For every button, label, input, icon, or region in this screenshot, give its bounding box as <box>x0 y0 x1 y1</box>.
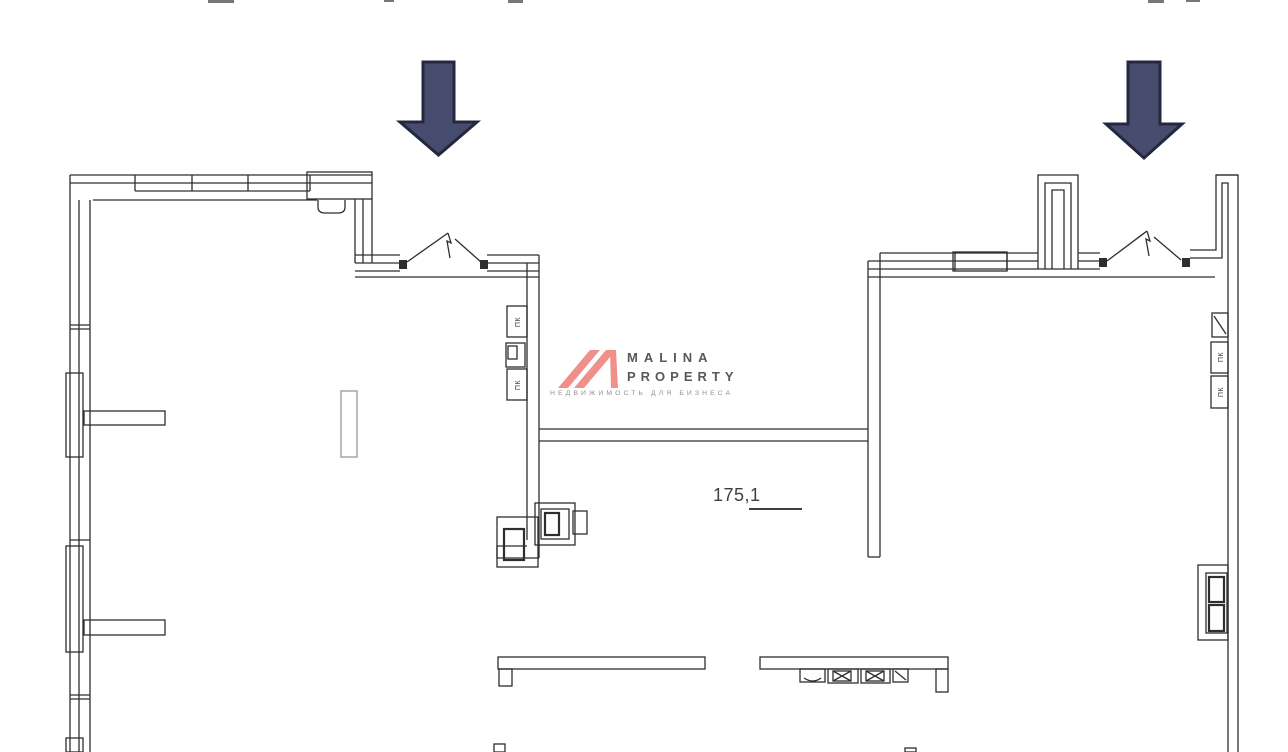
right-wall-fixtures: ПК ПК <box>1198 313 1228 640</box>
door-jamb <box>1182 258 1190 267</box>
cropped-edge-marks <box>208 0 1200 3</box>
door-swing <box>407 233 448 262</box>
interior-stub-wall <box>84 411 165 425</box>
brand-logo: MALINA PROPERTY НЕДВИЖИМОСТЬ ДЛЯ БИЗНЕСА <box>548 338 748 402</box>
counter <box>498 657 705 669</box>
equipment-unit <box>1209 605 1224 631</box>
top-left-wall <box>70 172 372 263</box>
sink-cross <box>833 671 851 681</box>
equipment-unit <box>545 513 559 535</box>
entrance-arrow-icon <box>400 62 477 155</box>
wall-pier <box>66 373 83 457</box>
brand-logo-mark-icon <box>554 344 620 392</box>
sink-detail <box>895 671 906 680</box>
bottom-furniture <box>494 657 948 752</box>
entrance-arrow-icon <box>1106 62 1182 158</box>
equipment-unit <box>504 529 524 560</box>
wall-pier <box>66 738 83 752</box>
sink-unit <box>800 669 825 682</box>
window-mullion <box>955 253 1007 271</box>
door-jamb <box>1099 258 1107 267</box>
cabinet-detail <box>508 346 517 359</box>
fire-cabinet-label: ПК <box>1218 352 1225 363</box>
window-mullion <box>70 325 90 329</box>
left-exterior-wall <box>66 175 165 752</box>
brand-name-line2: PROPERTY <box>627 369 739 384</box>
door-swing <box>1107 231 1147 261</box>
brand-tagline: НЕДВИЖИМОСТЬ ДЛЯ БИЗНЕСА <box>550 390 733 397</box>
table-leg-cropped <box>494 744 505 752</box>
wall-line <box>1078 253 1100 261</box>
floor-plan-page: ПК ПК ПК ПК <box>0 0 1288 752</box>
wall-step <box>355 199 372 263</box>
right-top-wall <box>868 175 1215 277</box>
counter-leg <box>499 669 512 686</box>
sink-cross <box>866 671 884 681</box>
counter <box>760 657 948 669</box>
room-area-label: 175,1 <box>713 485 761 506</box>
door-swing <box>1154 237 1181 260</box>
door-swing-break <box>1146 231 1150 256</box>
entrance-door-1 <box>355 233 539 277</box>
wall-line <box>1190 183 1228 752</box>
pillar-outline <box>1045 183 1071 269</box>
interior-stub-wall <box>84 620 165 635</box>
pillar-outline <box>1052 190 1064 269</box>
fire-cabinet-label: ПК <box>515 380 522 391</box>
pillar-outline <box>1038 175 1078 269</box>
wall-pier <box>66 546 83 652</box>
corridor-wall <box>539 253 880 557</box>
right-exterior-wall <box>1190 175 1238 752</box>
window-mullion <box>70 695 90 699</box>
wall-niche <box>318 200 345 213</box>
door-swing-break <box>447 233 451 258</box>
fire-cabinet-label: ПК <box>515 317 522 328</box>
door-swing <box>455 239 481 262</box>
entrance-door-2 <box>1099 231 1190 267</box>
brand-name-line1: MALINA <box>627 350 714 365</box>
door-jamb <box>399 260 407 269</box>
fire-cabinet-label: ПК <box>1218 387 1225 398</box>
room-area-underline <box>749 508 802 510</box>
column <box>341 391 357 457</box>
equipment-unit <box>1209 577 1224 602</box>
cabinet-detail <box>1214 316 1226 334</box>
table-leg-cropped <box>905 748 916 752</box>
counter-leg <box>936 669 948 692</box>
wall-line <box>1190 175 1238 752</box>
middle-left-wall <box>497 255 539 558</box>
wall-pier <box>307 172 372 199</box>
sink-detail <box>804 678 821 681</box>
